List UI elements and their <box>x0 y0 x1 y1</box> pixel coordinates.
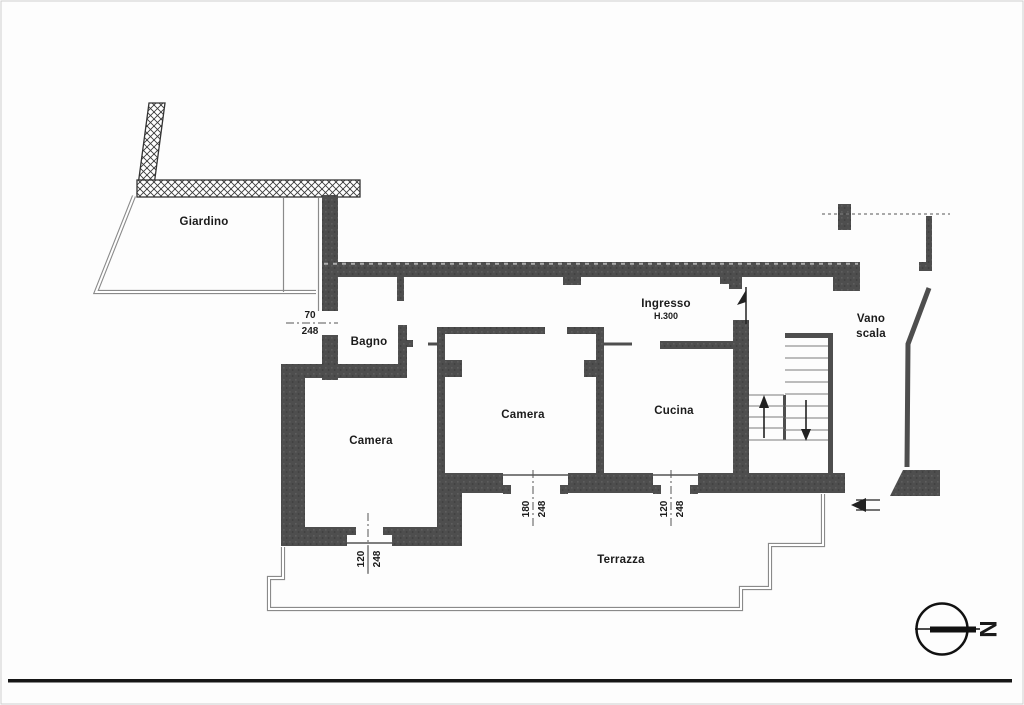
wall-segment <box>733 320 749 483</box>
wall-segment-bottom <box>890 470 940 496</box>
dim-door-bagno-width: 70 <box>304 310 316 321</box>
wall-segment <box>596 327 604 477</box>
angled-wall <box>907 288 929 467</box>
property-boundary-lines <box>96 196 823 609</box>
wall-segment <box>398 325 407 378</box>
dim-door-bagno-height: 248 <box>302 326 319 337</box>
wall-segments <box>281 195 940 546</box>
window-reveal <box>690 485 698 494</box>
door-swing-arrow <box>737 290 746 305</box>
room-label-ingresso: Ingresso <box>641 298 691 310</box>
wall-foot <box>919 262 932 271</box>
wall-segment-bottom <box>568 473 653 493</box>
room-label-camera-left: Camera <box>349 435 393 447</box>
wall-pilaster <box>397 276 404 301</box>
wall-segment-bottom <box>698 473 845 493</box>
window-reveal <box>560 485 568 494</box>
room-label-camera-mid: Camera <box>501 409 545 421</box>
room-label-cucina: Cucina <box>654 405 694 417</box>
north-compass: N <box>915 604 1001 655</box>
room-label-vano-scala-2: scala <box>856 328 886 340</box>
stair-up-arrow-head <box>759 395 769 408</box>
dim-window-left-height: 248 <box>372 550 383 567</box>
room-label-vano-scala-1: Vano <box>857 313 885 325</box>
dim-window-right-height: 248 <box>675 500 686 517</box>
dim-window-mid-height: 248 <box>537 500 548 517</box>
window-reveal <box>347 527 356 535</box>
room-label-terrazza: Terrazza <box>597 554 645 566</box>
wall-tick <box>405 340 413 347</box>
window-reveal <box>653 485 661 494</box>
floor-plan-page: 70 248 120 248 180 248 120 248 Giardino … <box>0 0 1024 705</box>
wall-segment-top <box>322 262 860 277</box>
stair-treads <box>749 346 828 440</box>
wall-stub <box>838 204 851 230</box>
dim-window-left-width: 120 <box>356 550 367 567</box>
dim-window-mid-width: 180 <box>521 500 532 517</box>
entrance-door-symbol <box>737 287 746 324</box>
compass-north-letter: N <box>974 620 1001 637</box>
wall-segment <box>926 216 932 268</box>
wall-segment <box>281 364 305 546</box>
room-label-bagno: Bagno <box>351 336 388 348</box>
wall-segment <box>660 341 737 349</box>
stair-down-arrow-head <box>801 429 811 441</box>
wall-pilaster <box>720 276 742 289</box>
wall-segment <box>322 195 338 311</box>
wall-segment-bottom <box>392 527 462 546</box>
stair-wall <box>828 333 833 473</box>
room-label-ingresso-height: H.300 <box>654 311 678 321</box>
floor-plan-drawing: 70 248 120 248 180 248 120 248 Giardino … <box>0 0 1024 705</box>
wall-segment <box>437 327 545 334</box>
wall-segment-bottom <box>281 527 347 546</box>
dim-window-right-width: 120 <box>659 500 670 517</box>
wall-segment <box>437 327 445 477</box>
thin-partitions <box>428 288 929 467</box>
stair-wall <box>785 333 833 338</box>
hatched-wall <box>137 103 360 197</box>
wall-block <box>445 360 462 377</box>
wall-segment <box>833 262 860 291</box>
terrace-step-arrow <box>851 498 880 512</box>
wall-block <box>584 360 596 377</box>
window-reveal <box>383 527 392 535</box>
bottom-rule-line <box>8 679 1012 683</box>
hatched-wall-band <box>137 180 360 197</box>
room-label-giardino: Giardino <box>180 216 229 228</box>
compass-needle <box>930 627 976 633</box>
staircase <box>749 333 833 473</box>
window-reveal <box>503 485 511 494</box>
wall-pilaster <box>563 276 581 285</box>
